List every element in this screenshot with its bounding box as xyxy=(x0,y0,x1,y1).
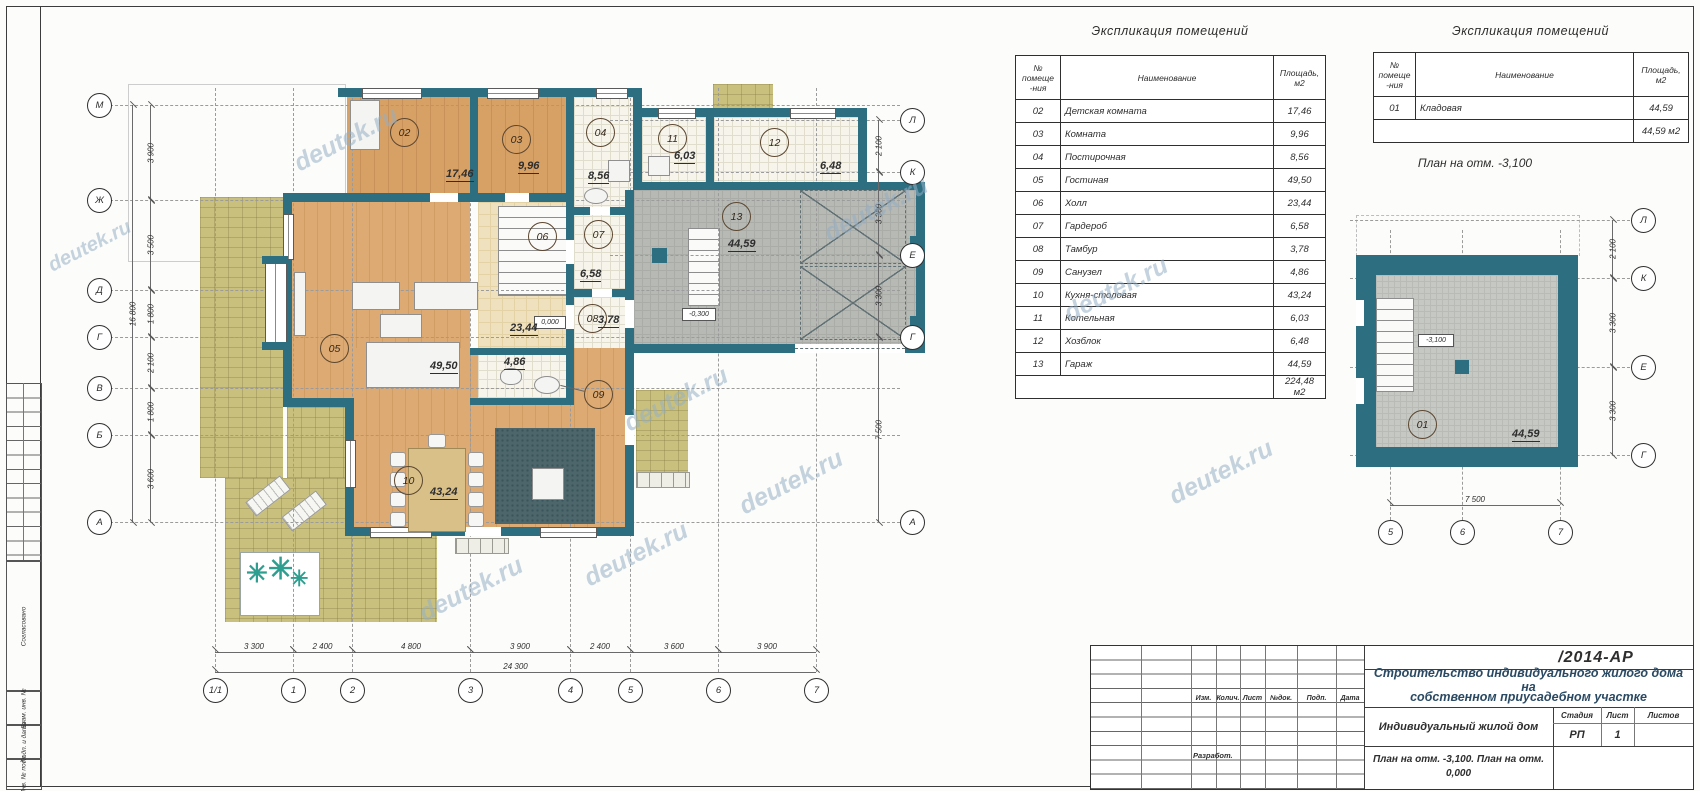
table-total-row: 224,48 м2 xyxy=(1016,376,1326,399)
sheet-label: Лист xyxy=(1601,709,1634,722)
cell-area: 17,46 xyxy=(1274,100,1326,123)
axis-label: К xyxy=(910,167,916,178)
column xyxy=(652,248,667,263)
dim-value: 3 900 xyxy=(757,642,777,651)
axis-bubble-3: 3 xyxy=(458,678,483,703)
axis-bubble-2: 2 xyxy=(340,678,365,703)
sheet-title-line1: План на отм. -3,100. План на отм. xyxy=(1366,752,1551,767)
cell-area: 44,59 xyxy=(1634,97,1689,120)
entrance-path xyxy=(636,390,688,472)
sofa xyxy=(352,282,400,310)
table-row: 11Котельная6,03 xyxy=(1016,307,1326,330)
axis-bubble-L: Л xyxy=(1631,208,1656,233)
cell-name: Кухня-столовая xyxy=(1061,284,1274,307)
cell-area: 4,86 xyxy=(1274,261,1326,284)
axis-label: 1/1 xyxy=(209,685,222,696)
sofa xyxy=(414,282,478,310)
stairs-garage xyxy=(688,228,720,306)
grid-line xyxy=(1141,646,1142,789)
cell-name: Хозблок xyxy=(1061,330,1274,353)
axis-label: Л xyxy=(1640,215,1647,226)
col-header-area: Площадь, м2 xyxy=(1634,53,1689,97)
room-tag-05: 05 xyxy=(320,334,349,363)
door-opening xyxy=(505,193,529,202)
room-number: 11 xyxy=(667,133,678,145)
grid-line xyxy=(1191,646,1192,789)
axis-bubble-K: К xyxy=(1631,266,1656,291)
cell-num: 11 xyxy=(1016,307,1061,330)
column xyxy=(1455,360,1469,374)
elevation-value: -3,100 xyxy=(1426,337,1446,344)
table-row: 01Кладовая44,59 xyxy=(1374,97,1689,120)
room-number: 02 xyxy=(399,127,411,139)
door-opening xyxy=(1356,300,1364,326)
stairs-hall xyxy=(498,206,568,296)
dim-value: 1 800 xyxy=(147,303,156,323)
grid-line xyxy=(1364,746,1693,747)
dimension: 2 400 xyxy=(570,652,630,653)
window xyxy=(487,88,539,99)
axis-label: 5 xyxy=(1388,527,1393,538)
cell-num: 12 xyxy=(1016,330,1061,353)
coffee-table xyxy=(380,314,422,338)
dim-value: 2 400 xyxy=(312,642,332,651)
explication-title-basement: Экспликация помещений xyxy=(1373,24,1688,38)
cell-name: Гардероб xyxy=(1061,215,1274,238)
chair xyxy=(428,434,446,448)
rev-col-izm: Изм. xyxy=(1191,692,1216,704)
door-opening xyxy=(590,207,610,215)
plant-icon: ✳ xyxy=(246,558,268,589)
axis-label: 1 xyxy=(291,685,296,696)
wall xyxy=(633,88,642,190)
axis-label: 6 xyxy=(716,685,721,696)
dim-value: 2 100 xyxy=(147,352,156,372)
stamp-label: Согласовано xyxy=(21,606,28,646)
sheets-value xyxy=(1634,725,1693,744)
door-opening xyxy=(592,289,612,297)
room-tag-11: 11 xyxy=(658,124,687,153)
cell-name: Санузел xyxy=(1061,261,1274,284)
axis-line xyxy=(816,88,817,672)
dimension: 1 800 xyxy=(150,388,151,435)
wall xyxy=(858,108,867,190)
room-area-11: 6,03 xyxy=(674,150,695,164)
room-tag-01: 01 xyxy=(1408,410,1437,439)
door-opening xyxy=(465,527,501,536)
axis-label: А xyxy=(96,517,102,528)
wall xyxy=(283,193,574,202)
table-row: 13Гараж44,59 xyxy=(1016,353,1326,376)
explication-table-main: № помеще -ния Наименование Площадь, м2 0… xyxy=(1015,55,1326,399)
room-area-12: 6,48 xyxy=(820,160,841,174)
room-tag-10: 10 xyxy=(394,466,423,495)
window xyxy=(362,88,422,99)
dim-value: 3 300 xyxy=(1609,312,1618,332)
dim-value: 3 300 xyxy=(1609,401,1618,421)
room-area-09: 4,86 xyxy=(504,356,525,370)
rev-col-podp: Подп. xyxy=(1297,692,1336,704)
axis-label: 4 xyxy=(568,685,573,696)
boiler xyxy=(648,156,670,176)
axis-label: 6 xyxy=(1460,527,1465,538)
dim-value: 4 800 xyxy=(401,642,421,651)
sheet-title-line2: 0,000 xyxy=(1366,766,1551,781)
cell-area: 6,58 xyxy=(1274,215,1326,238)
room-number: 13 xyxy=(731,211,743,223)
cell-name: Гостиная xyxy=(1061,169,1274,192)
rev-col-kolich: Колич. xyxy=(1216,692,1240,704)
axis-line xyxy=(293,88,294,672)
cell-name: Тамбур xyxy=(1061,238,1274,261)
window xyxy=(790,108,836,119)
elevation-mark: -3,100 xyxy=(1418,334,1454,347)
dimension: 3 900 xyxy=(470,652,570,653)
axis-label: К xyxy=(1641,273,1647,284)
table-row: 06Холл23,44 xyxy=(1016,192,1326,215)
cell-num: 10 xyxy=(1016,284,1061,307)
cell-area: 23,44 xyxy=(1274,192,1326,215)
chair xyxy=(468,512,484,527)
table-row: 04Постирочная8,56 xyxy=(1016,146,1326,169)
axis-label: Л xyxy=(909,115,916,126)
dimension: 3 300 xyxy=(878,255,879,337)
col-header-num: № помеще -ния xyxy=(1016,56,1061,100)
room-area-08: 3,78 xyxy=(598,314,619,328)
axis-label: 7 xyxy=(814,685,819,696)
chair xyxy=(468,492,484,507)
table-row: 07Гардероб6,58 xyxy=(1016,215,1326,238)
dim-value: 2 100 xyxy=(875,136,884,156)
sheets-label: Листов xyxy=(1634,709,1693,722)
dimension: 2 100 xyxy=(1612,220,1613,278)
wardrobe xyxy=(350,100,380,150)
cell-num: 13 xyxy=(1016,353,1061,376)
explication-table-basement: № помеще -ния Наименование Площадь, м2 0… xyxy=(1373,52,1689,143)
table-row: 08Тамбур3,78 xyxy=(1016,238,1326,261)
room-number: 12 xyxy=(769,137,781,149)
table-row: 03Комната9,96 xyxy=(1016,123,1326,146)
axis-bubble-5: 5 xyxy=(1378,520,1403,545)
cell-area: 9,96 xyxy=(1274,123,1326,146)
axis-label: 2 xyxy=(350,685,355,696)
cell-area: 3,78 xyxy=(1274,238,1326,261)
dimension-total: 24 300 xyxy=(215,672,816,673)
room-area-01: 44,59 xyxy=(1512,428,1540,442)
axis-bubble-M: М xyxy=(87,93,112,118)
axis-line xyxy=(105,290,900,291)
room-tag-06: 06 xyxy=(528,222,557,251)
axis-line xyxy=(105,337,900,338)
room-area-07: 6,58 xyxy=(580,268,601,282)
grid-line xyxy=(1553,723,1693,724)
room-number: 06 xyxy=(537,231,549,243)
room-number: 03 xyxy=(511,134,523,146)
project-title-line2: собственном приусадебном участке xyxy=(1366,688,1691,705)
table-row: 12Хозблок6,48 xyxy=(1016,330,1326,353)
window xyxy=(345,440,356,488)
dimension: 7 500 xyxy=(1390,505,1560,506)
dim-value: 3 300 xyxy=(875,203,884,223)
dimension: 3 300 xyxy=(215,652,293,653)
tv-unit xyxy=(294,272,306,336)
cell-num: 02 xyxy=(1016,100,1061,123)
table-row: 02Детская комната17,46 xyxy=(1016,100,1326,123)
cell-name: Холл xyxy=(1061,192,1274,215)
room-tag-09: 09 xyxy=(584,380,613,409)
axis-label: Е xyxy=(909,250,915,261)
axis-bubble-7: 7 xyxy=(804,678,829,703)
room-tag-03: 03 xyxy=(502,125,531,154)
dimension: 2 400 xyxy=(293,652,352,653)
axis-bubble-6: 6 xyxy=(706,678,731,703)
room-area-10: 43,24 xyxy=(430,486,458,500)
dimension: 4 800 xyxy=(352,652,470,653)
rev-col-ndok: №док. xyxy=(1265,692,1297,704)
dimension: 3 300 xyxy=(878,172,879,255)
axis-bubble-G: Г xyxy=(1631,443,1656,468)
dim-value: 3 500 xyxy=(147,235,156,255)
wall xyxy=(566,348,574,405)
cell-empty xyxy=(1374,120,1634,143)
axis-line xyxy=(105,105,900,106)
dimension: 2 100 xyxy=(878,120,879,172)
axis-bubble-4: 4 xyxy=(558,678,583,703)
axis-label: В xyxy=(96,383,102,394)
door-opening xyxy=(566,240,574,264)
cell-name: Детская комната xyxy=(1061,100,1274,123)
cell-name: Постирочная xyxy=(1061,146,1274,169)
stamp-grid xyxy=(6,383,42,562)
cell-num: 07 xyxy=(1016,215,1061,238)
axis-label: Б xyxy=(96,430,102,441)
stove xyxy=(532,468,564,500)
garage-gate-brace xyxy=(800,266,906,340)
cell-num: 01 xyxy=(1374,97,1416,120)
dimension: 2 100 xyxy=(150,337,151,388)
axis-bubble-7: 7 xyxy=(1548,520,1573,545)
axis-line xyxy=(610,120,900,121)
cell-empty xyxy=(1016,376,1274,399)
door-opening xyxy=(625,300,634,328)
cell-total: 44,59 м2 xyxy=(1634,120,1689,143)
axis-label: Ж xyxy=(95,195,104,206)
table-row: 05Гостиная49,50 xyxy=(1016,169,1326,192)
rev-col-data: Дата xyxy=(1336,692,1364,704)
axis-label: Д xyxy=(96,285,103,296)
room-tag-07: 07 xyxy=(584,220,613,249)
dim-value: 3 600 xyxy=(664,642,684,651)
axis-line xyxy=(1350,220,1630,221)
stamp-vzam-inv: Взам. инв. № xyxy=(6,690,42,726)
grid-line xyxy=(1297,646,1298,789)
basement-stairs xyxy=(1376,298,1414,392)
dimension-total: 16 800 xyxy=(132,105,133,522)
stamp-inv-podl: Инв. № подл. xyxy=(6,758,42,790)
cell-total: 224,48 м2 xyxy=(1274,376,1326,399)
dimension: 3 900 xyxy=(718,652,816,653)
col-header-num: № помеще -ния xyxy=(1374,53,1416,97)
axis-bubble-G2: Г xyxy=(900,325,925,350)
axis-bubble-L: Л xyxy=(900,108,925,133)
axis-bubble-A2: А xyxy=(900,510,925,535)
title-block: Изм. Колич. Лист №док. Подп. Дата Разраб… xyxy=(1090,645,1694,790)
wall xyxy=(470,348,574,355)
room-area-02: 17,46 xyxy=(446,168,474,182)
dimension: 3 500 xyxy=(150,200,151,290)
elevation-value: -0,300 xyxy=(689,311,709,318)
cell-area: 49,50 xyxy=(1274,169,1326,192)
axis-bubble-E: Е xyxy=(900,243,925,268)
cell-name: Комната xyxy=(1061,123,1274,146)
axis-bubble-6: 6 xyxy=(1450,520,1475,545)
chair xyxy=(390,452,406,467)
dimension: 3 300 xyxy=(1612,367,1613,455)
window xyxy=(658,108,696,119)
cell-num: 08 xyxy=(1016,238,1061,261)
wall xyxy=(633,182,925,190)
dim-value: 2 100 xyxy=(1609,239,1618,259)
dimension: 7 500 xyxy=(878,337,879,522)
axis-bubble-A: А xyxy=(87,510,112,535)
room-tag-02: 02 xyxy=(390,118,419,147)
axis-bubble-K: К xyxy=(900,160,925,185)
dim-value: 3 300 xyxy=(875,286,884,306)
grid-line xyxy=(1240,646,1241,789)
axis-label: 7 xyxy=(1558,527,1563,538)
stamp-label: Инв. № подл. xyxy=(21,754,28,791)
dimension: 3 600 xyxy=(150,435,151,522)
sheet-value: 1 xyxy=(1601,725,1634,744)
room-tag-12: 12 xyxy=(760,128,789,157)
sink xyxy=(534,376,560,394)
room-number: 09 xyxy=(593,389,605,401)
room-area-04: 8,56 xyxy=(588,170,609,184)
cell-num: 03 xyxy=(1016,123,1061,146)
wall xyxy=(706,117,714,182)
axis-bubble-1-1: 1/1 xyxy=(203,678,228,703)
window xyxy=(283,214,294,260)
table-total-row: 44,59 м2 xyxy=(1374,120,1689,143)
cell-area: 6,03 xyxy=(1274,307,1326,330)
stage-label: Стадия xyxy=(1553,709,1601,722)
cell-num: 09 xyxy=(1016,261,1061,284)
axis-bubble-5: 5 xyxy=(618,678,643,703)
rev-col-list: Лист xyxy=(1240,692,1265,704)
garage-gate-brace xyxy=(800,190,906,264)
grid-line xyxy=(1216,646,1217,789)
drawing-sheet: Согласовано Взам. инв. № Подп. и дата Ин… xyxy=(0,0,1700,791)
door-opening xyxy=(566,305,574,329)
axis-label: А xyxy=(909,517,915,528)
door-opening xyxy=(625,415,634,445)
axis-label: 3 xyxy=(468,685,473,696)
axis-bubble-1: 1 xyxy=(281,678,306,703)
col-header-name: Наименование xyxy=(1416,53,1634,97)
grid-line xyxy=(1336,646,1337,789)
window xyxy=(596,88,628,99)
razrabot-label: Разработ. xyxy=(1193,751,1233,760)
dim-value: 7 500 xyxy=(1465,495,1485,504)
col-header-name: Наименование xyxy=(1061,56,1274,100)
cell-area: 8,56 xyxy=(1274,146,1326,169)
project-title-line1: Строительство индивидуального жилого дом… xyxy=(1366,671,1691,688)
dimension: 1 800 xyxy=(150,290,151,337)
entrance-steps xyxy=(636,472,690,488)
dim-value: 3 900 xyxy=(147,142,156,162)
stamp-grid-divider xyxy=(23,383,24,560)
elevation-value: 0,000 xyxy=(541,319,559,326)
stamp-soglasovano: Согласовано xyxy=(6,560,42,692)
dimension: 3 600 xyxy=(630,652,718,653)
garage-door-line xyxy=(795,348,905,349)
dim-value: 3 600 xyxy=(147,468,156,488)
col-header-area: Площадь, м2 xyxy=(1274,56,1326,100)
axis-bubble-G: Г xyxy=(87,325,112,350)
axis-line xyxy=(215,88,216,672)
room-area-06: 23,44 xyxy=(510,322,538,336)
washing-machine xyxy=(608,160,630,182)
room-tag-13: 13 xyxy=(722,202,751,231)
cell-name: Котельная xyxy=(1061,307,1274,330)
explication-title-main: Экспликация помещений xyxy=(1015,24,1325,38)
axis-label: Г xyxy=(910,332,915,343)
cell-num: 05 xyxy=(1016,169,1061,192)
table-row: 09Санузел4,86 xyxy=(1016,261,1326,284)
basement-plan-title: План на отм. -3,100 xyxy=(1370,156,1580,170)
dimension: 3 900 xyxy=(150,105,151,200)
chair xyxy=(468,452,484,467)
grid-line xyxy=(1265,646,1266,789)
porch-steps xyxy=(455,538,509,554)
laundry-sink xyxy=(584,188,608,204)
dim-value: 1 800 xyxy=(147,401,156,421)
dim-value: 16 800 xyxy=(129,301,138,325)
table-row: 10Кухня-столовая43,24 xyxy=(1016,284,1326,307)
room-area-03: 9,96 xyxy=(518,160,539,174)
elevation-mark: -0,300 xyxy=(682,308,716,321)
axis-label: Е xyxy=(1640,362,1646,373)
door-opening xyxy=(430,193,458,202)
stage-value: РП xyxy=(1553,725,1601,744)
room-number: 05 xyxy=(329,343,341,355)
wall xyxy=(283,398,354,407)
cell-area: 44,59 xyxy=(1274,353,1326,376)
dim-value: 2 400 xyxy=(590,642,610,651)
bay-window xyxy=(265,262,287,346)
room-area-13: 44,59 xyxy=(728,238,756,252)
object-name: Индивидуальный жилой дом xyxy=(1366,714,1551,740)
dim-value: 7 500 xyxy=(875,419,884,439)
room-number: 01 xyxy=(1417,419,1429,431)
room-tag-04: 04 xyxy=(586,118,615,147)
room-number: 10 xyxy=(403,475,415,487)
cell-num: 04 xyxy=(1016,146,1061,169)
room-number: 08 xyxy=(587,313,599,325)
dimension: 3 300 xyxy=(1612,278,1613,367)
dim-value: 24 300 xyxy=(503,662,527,671)
axis-bubble-Zh: Ж xyxy=(87,188,112,213)
axis-line xyxy=(718,88,719,672)
window xyxy=(540,527,597,538)
axis-bubble-E: Е xyxy=(1631,355,1656,380)
elevation-mark: 0,000 xyxy=(534,316,566,329)
room-number: 04 xyxy=(595,127,607,139)
cell-name: Кладовая xyxy=(1416,97,1634,120)
axis-label: Г xyxy=(97,332,102,343)
axis-bubble-B: Б xyxy=(87,423,112,448)
axis-label: М xyxy=(96,100,104,111)
